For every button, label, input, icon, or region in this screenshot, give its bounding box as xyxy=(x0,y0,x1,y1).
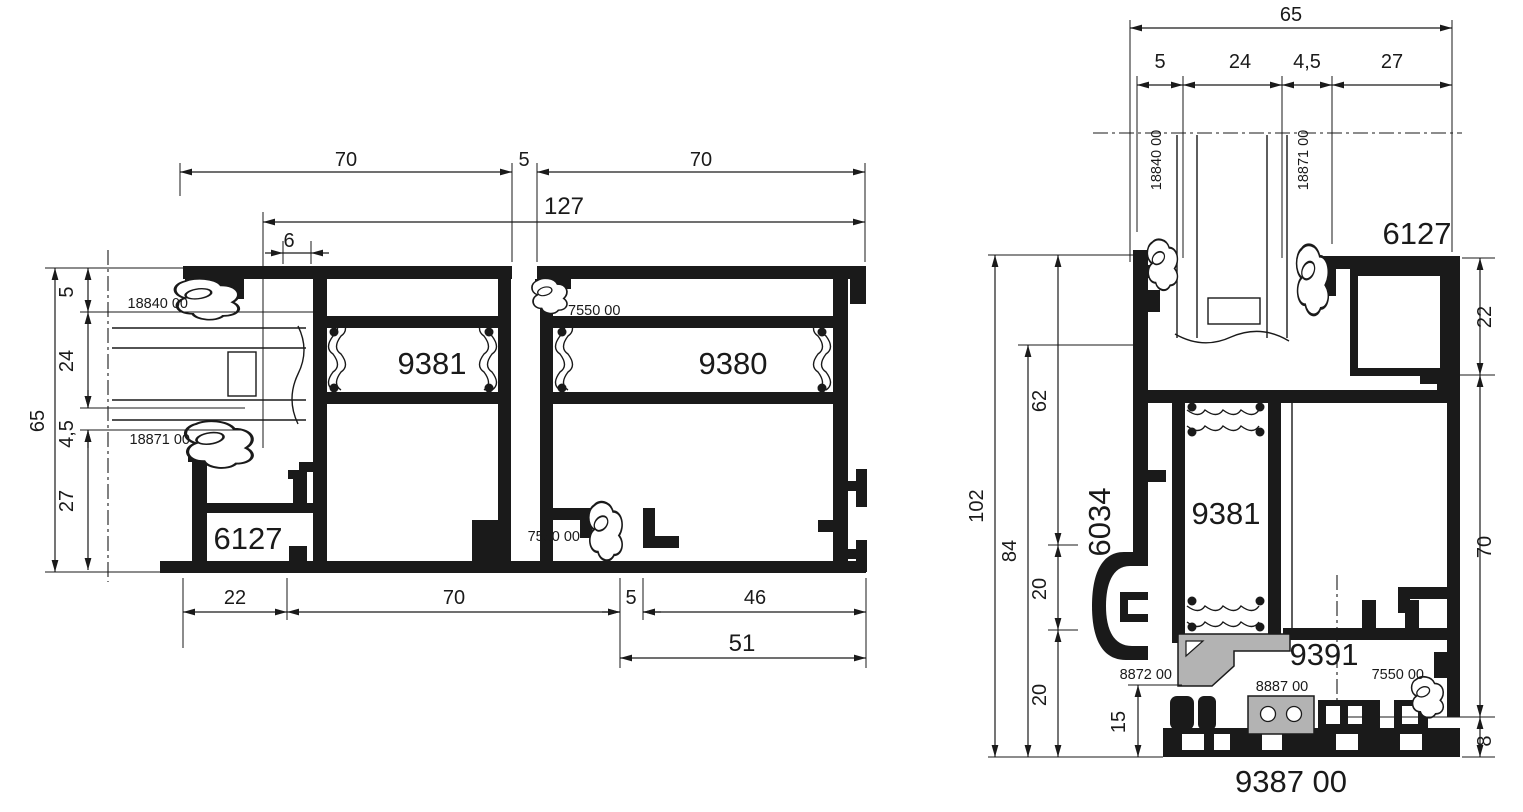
dim-bottom-51: 51 xyxy=(729,630,756,657)
dim-top-70-right: 70 xyxy=(690,149,712,171)
dim-overall-127: 127 xyxy=(544,193,584,220)
technical-drawing-canvas: 70 5 70 127 6 65 5 24 4,5 27 22 70 5 46 … xyxy=(0,0,1523,812)
glazing-panel-right-view xyxy=(1175,135,1289,343)
profile-label-6127-right-view: 6127 xyxy=(1383,216,1452,251)
part-label-7550-right-view: 7550 00 xyxy=(1372,667,1424,683)
dim-width-24: 24 xyxy=(1229,51,1251,73)
dim-right-70: 70 xyxy=(1474,536,1496,558)
dim-width-65: 65 xyxy=(1280,4,1302,26)
profile-label-9381-right-view: 9381 xyxy=(1192,496,1261,531)
dim-height-102: 102 xyxy=(966,489,988,522)
dim-top-70-left: 70 xyxy=(335,149,357,171)
gasket-18840-right-view xyxy=(1147,239,1177,290)
dim-height-65: 65 xyxy=(27,410,49,432)
part-label-18871-left-view: 18871 00 xyxy=(130,432,190,448)
part-label-7550-bottom: 7550 00 xyxy=(528,529,580,545)
connector-8887 xyxy=(1248,696,1314,734)
gasket-7550-bottom-left-view xyxy=(589,502,622,560)
profile-label-6127-left-view: 6127 xyxy=(214,521,283,556)
part-label-7550-top: 7550 00 xyxy=(568,303,620,319)
dim-chain-27: 27 xyxy=(56,490,78,512)
dim-bottom-22: 22 xyxy=(224,587,246,609)
dim-right-8: 8 xyxy=(1474,735,1496,746)
dim-chain-62: 62 xyxy=(1029,390,1051,412)
part-label-18871-right-view: 18871 00 xyxy=(1296,130,1312,190)
profile-label-9387: 9387 00 xyxy=(1235,764,1347,799)
profile-label-6034: 6034 xyxy=(1082,488,1117,557)
gasket-18871-right-view xyxy=(1297,245,1329,315)
dim-height-84: 84 xyxy=(999,540,1021,562)
dim-chain-20-upper: 20 xyxy=(1029,578,1051,600)
part-label-8887: 8887 00 xyxy=(1256,679,1308,695)
dim-offset-6: 6 xyxy=(283,230,294,252)
dim-width-5: 5 xyxy=(1154,51,1165,73)
profile-label-9391: 9391 xyxy=(1290,637,1359,672)
profile-label-9381-left-view: 9381 xyxy=(398,346,467,381)
gasket-18871-left-view xyxy=(186,421,253,468)
profile-label-9380: 9380 xyxy=(699,346,768,381)
dim-width-27: 27 xyxy=(1381,51,1403,73)
dim-chain-24: 24 xyxy=(56,350,78,372)
dim-right-22: 22 xyxy=(1474,306,1496,328)
part-label-18840-left-view: 18840 00 xyxy=(128,296,188,312)
dim-threshold-15: 15 xyxy=(1108,711,1130,733)
dim-top-5: 5 xyxy=(518,149,529,171)
part-label-8872: 8872 00 xyxy=(1120,667,1172,683)
part-label-18840-right-view: 18840 00 xyxy=(1149,130,1165,190)
dim-chain-20-lower: 20 xyxy=(1029,684,1051,706)
dim-chain-5: 5 xyxy=(56,286,78,297)
dim-width-4-5: 4,5 xyxy=(1293,51,1321,73)
dim-bottom-46: 46 xyxy=(744,587,766,609)
dim-chain-4-5: 4,5 xyxy=(56,420,78,448)
glazing-panel-left-view xyxy=(112,326,306,424)
dim-bottom-70: 70 xyxy=(443,587,465,609)
profile-section-drawing: 70 5 70 127 6 65 5 24 4,5 27 22 70 5 46 … xyxy=(0,0,1523,812)
dim-bottom-5: 5 xyxy=(625,587,636,609)
